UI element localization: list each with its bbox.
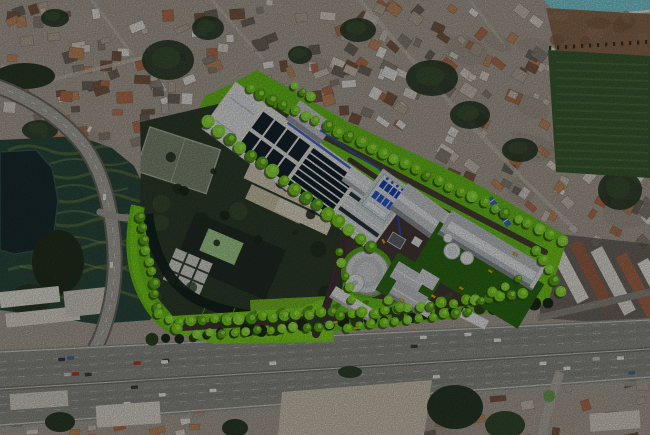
scene-svg xyxy=(0,0,650,435)
aerial-render-image xyxy=(0,0,650,435)
photo-grain xyxy=(0,0,650,435)
